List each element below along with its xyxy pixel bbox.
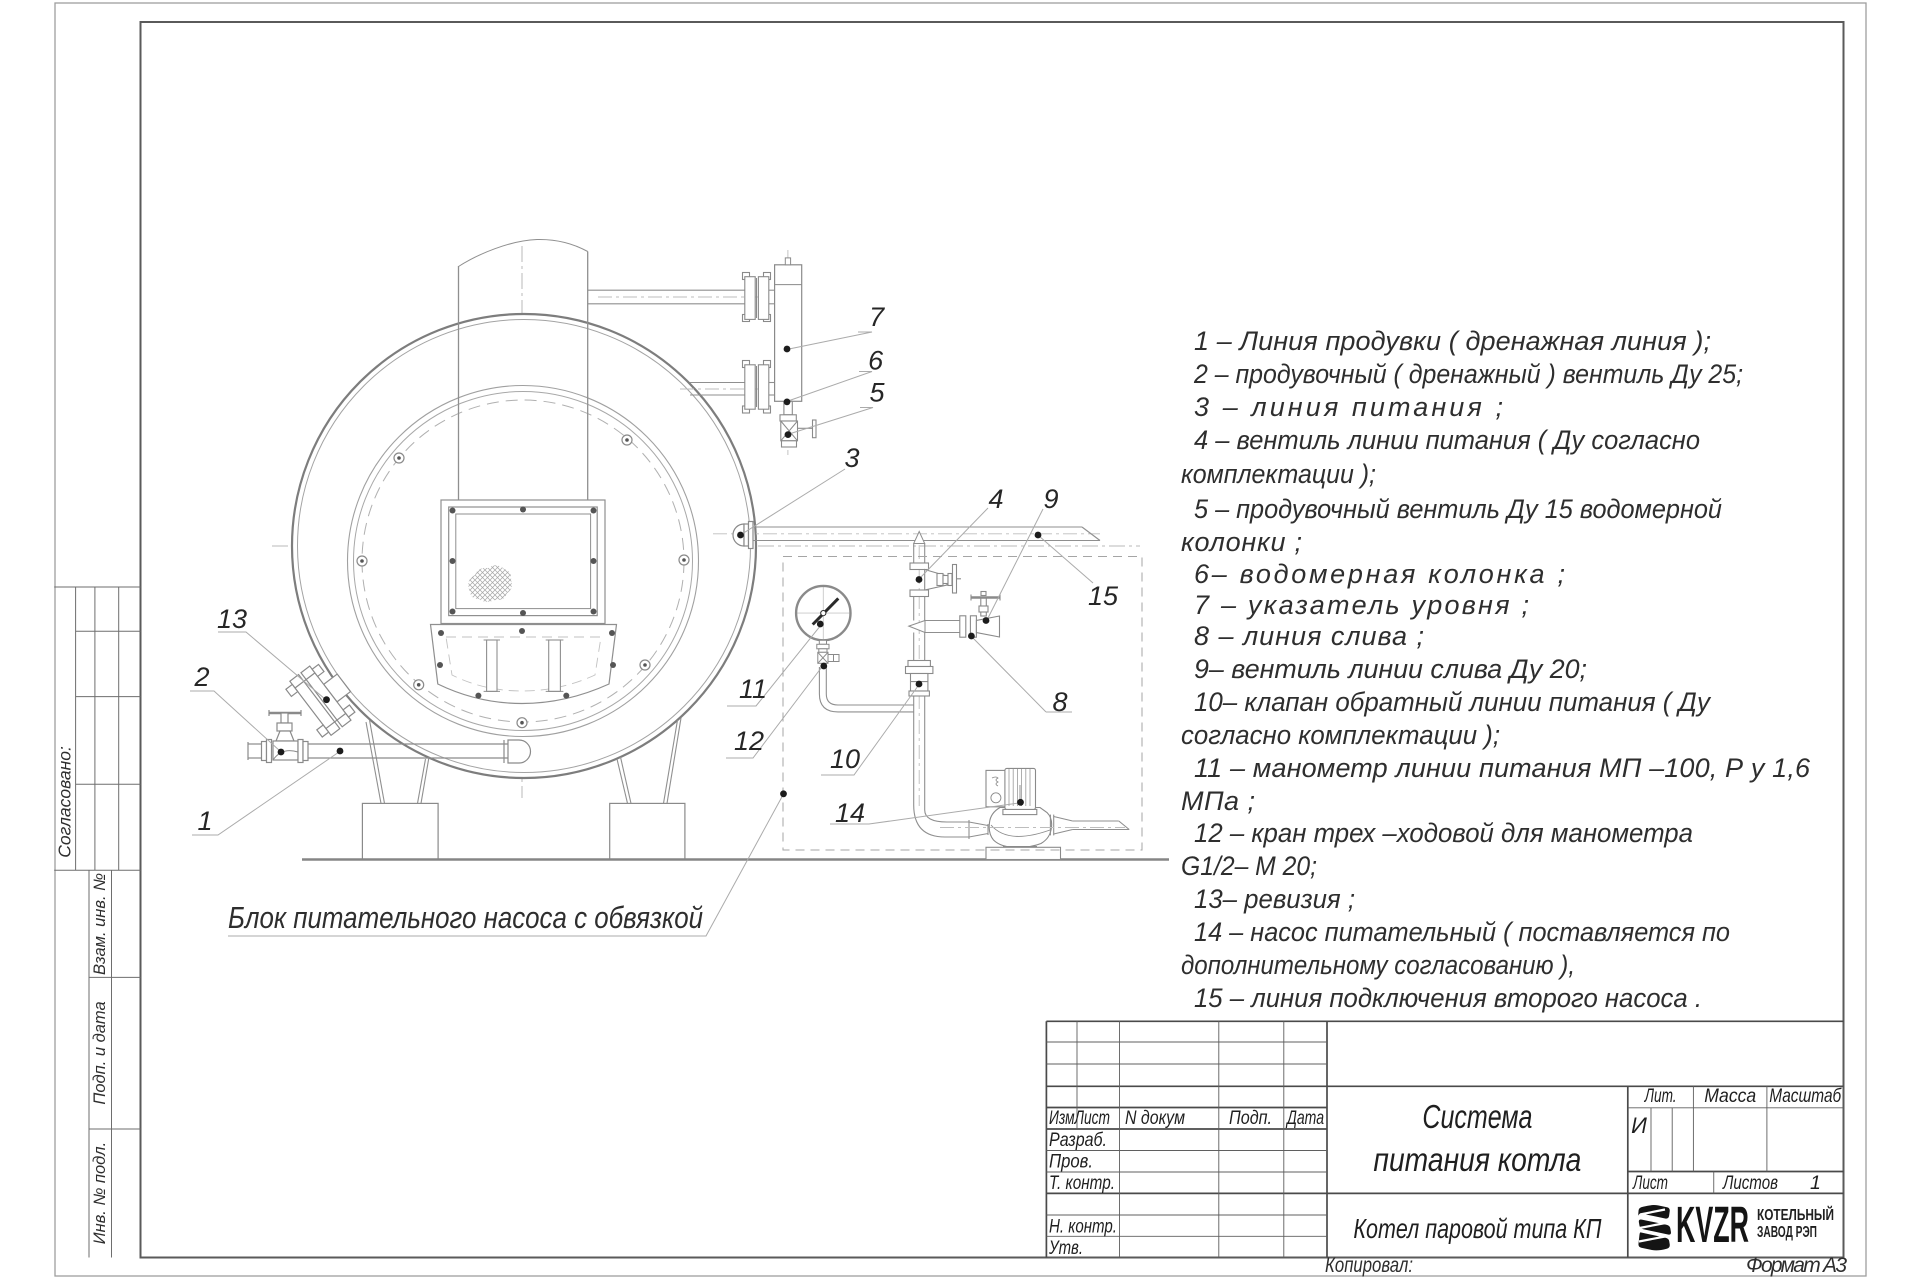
svg-text:13– ревизия ;: 13– ревизия ; bbox=[1194, 884, 1355, 914]
svg-text:Н. контр.: Н. контр. bbox=[1049, 1216, 1117, 1238]
svg-text:3: 3 bbox=[844, 443, 859, 473]
svg-text:11: 11 bbox=[739, 674, 767, 704]
svg-text:Т. контр.: Т. контр. bbox=[1049, 1172, 1115, 1194]
svg-text:4 – вентиль линии питания (: 4 – вентиль линии питания ( Ду согласно bbox=[1194, 425, 1700, 455]
svg-text:Взам. инв. №: Взам. инв. № bbox=[91, 873, 109, 975]
svg-text:5 – продувочный вентиль Ду 15: 5 – продувочный вентиль Ду 15 водомерной bbox=[1194, 494, 1722, 524]
svg-text:Подп.: Подп. bbox=[1229, 1107, 1272, 1129]
svg-text:колонки ;: колонки ; bbox=[1181, 527, 1302, 557]
svg-text:Формат А3: Формат А3 bbox=[1746, 1254, 1847, 1277]
svg-text:11 – манометр линии питания: 11 – манометр линии питания МП –100, Р у… bbox=[1194, 753, 1811, 783]
svg-text:Дата: Дата bbox=[1286, 1107, 1325, 1129]
svg-text:1: 1 bbox=[197, 806, 212, 836]
svg-text:8 – линия слива ;: 8 – линия слива ; bbox=[1194, 621, 1424, 651]
svg-text:8: 8 bbox=[1052, 687, 1067, 717]
svg-text:Блок питательного насоса с обв: Блок питательного насоса с обвязкой bbox=[228, 900, 703, 935]
svg-text:13: 13 bbox=[217, 604, 247, 634]
svg-text:Инв. № подл.: Инв. № подл. bbox=[91, 1142, 109, 1244]
svg-text:1: 1 bbox=[1810, 1172, 1821, 1194]
svg-text:15: 15 bbox=[1088, 581, 1119, 611]
svg-text:7 – указатель уровня ;: 7 – указатель уровня ; bbox=[1194, 590, 1529, 620]
svg-text:Листов: Листов bbox=[1721, 1172, 1778, 1194]
svg-text:5: 5 bbox=[869, 378, 885, 408]
svg-text:Масштаб: Масштаб bbox=[1769, 1085, 1842, 1107]
svg-text:N докум: N докум bbox=[1125, 1107, 1185, 1129]
svg-text:Система: Система bbox=[1422, 1098, 1532, 1135]
svg-text:дополнительному согласованию ): дополнительному согласованию ), bbox=[1181, 950, 1575, 980]
svg-text:9: 9 bbox=[1043, 484, 1058, 514]
svg-text:согласно комплектации );: согласно комплектации ); bbox=[1181, 720, 1500, 750]
svg-text:2: 2 bbox=[193, 662, 209, 692]
svg-text:Масса: Масса bbox=[1704, 1085, 1756, 1107]
svg-text:Лист: Лист bbox=[1632, 1172, 1668, 1194]
svg-text:G1/2– М 20;: G1/2– М 20; bbox=[1181, 851, 1317, 881]
svg-text:12 – кран трех –ходовой для м: 12 – кран трех –ходовой для манометра bbox=[1194, 818, 1693, 848]
svg-text:1 – Линия продувки ( дренажн: 1 – Линия продувки ( дренажная линия ); bbox=[1194, 326, 1711, 356]
svg-text:МПа ;: МПа ; bbox=[1181, 786, 1255, 816]
svg-text:4: 4 bbox=[988, 484, 1003, 514]
svg-text:15 – линия подключения второг: 15 – линия подключения второго насоса . bbox=[1194, 983, 1702, 1013]
svg-text:Разраб.: Разраб. bbox=[1049, 1129, 1107, 1151]
svg-text:10: 10 bbox=[830, 744, 860, 774]
svg-text:3 – линия питания ;: 3 – линия питания ; bbox=[1194, 392, 1503, 422]
svg-text:7: 7 bbox=[869, 302, 885, 332]
svg-text:Пров.: Пров. bbox=[1049, 1151, 1093, 1173]
svg-text:Котел паровой типа КП: Котел паровой типа КП bbox=[1353, 1213, 1602, 1244]
svg-text:Подп. и дата: Подп. и дата bbox=[91, 1001, 109, 1104]
svg-text:ЗАВОД РЭП: ЗАВОД РЭП bbox=[1757, 1224, 1817, 1241]
svg-text:комплектации );: комплектации ); bbox=[1181, 459, 1376, 489]
svg-text:9– вентиль линии слива Ду 20: 9– вентиль линии слива Ду 20; bbox=[1194, 654, 1587, 684]
svg-text:KVZR: KVZR bbox=[1676, 1196, 1749, 1253]
svg-text:14 – насос питательный ( пос: 14 – насос питательный ( поставляется по bbox=[1194, 917, 1730, 947]
svg-text:Утв.: Утв. bbox=[1048, 1237, 1083, 1259]
svg-text:6: 6 bbox=[868, 346, 884, 376]
svg-text:Согласовано:: Согласовано: bbox=[55, 746, 75, 858]
svg-text:Копировал:: Копировал: bbox=[1325, 1254, 1413, 1277]
svg-text:Лит.: Лит. bbox=[1643, 1085, 1676, 1107]
svg-text:ИзмЛист: ИзмЛист bbox=[1049, 1107, 1110, 1129]
svg-text:И: И bbox=[1631, 1113, 1647, 1138]
svg-text:2 – продувочный ( дренажный: 2 – продувочный ( дренажный ) вентиль Ду… bbox=[1193, 359, 1743, 389]
svg-text:питания котла: питания котла bbox=[1373, 1141, 1581, 1178]
svg-text:12: 12 bbox=[734, 726, 764, 756]
svg-text:6– водомерная колонка ;: 6– водомерная колонка ; bbox=[1194, 559, 1565, 589]
svg-text:КОТЕЛЬНЫЙ: КОТЕЛЬНЫЙ bbox=[1757, 1206, 1834, 1224]
svg-text:14: 14 bbox=[835, 798, 865, 828]
svg-text:10– клапан обратный линии пит: 10– клапан обратный линии питания ( Ду bbox=[1194, 687, 1711, 717]
